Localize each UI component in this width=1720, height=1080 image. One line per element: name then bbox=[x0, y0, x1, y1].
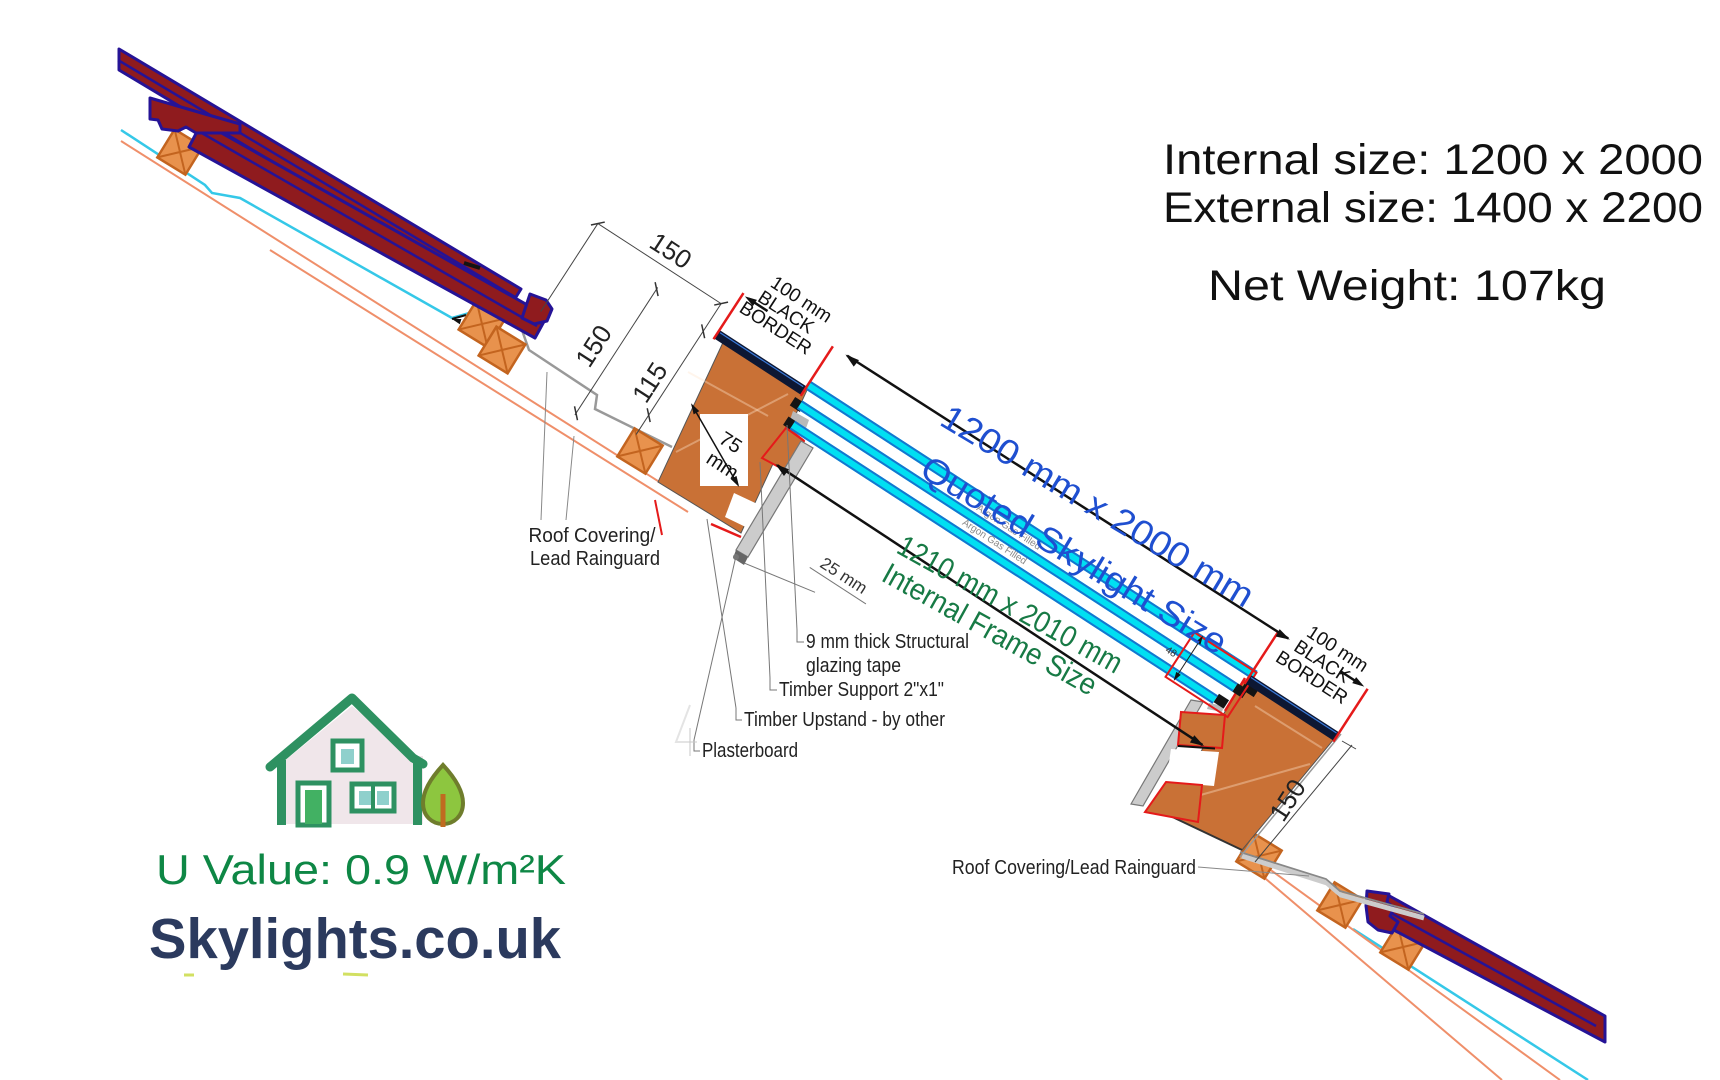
svg-text:Timber Support 2"x1": Timber Support 2"x1" bbox=[779, 679, 944, 701]
svg-text:U Value: 0.9 W/m²K: U Value: 0.9 W/m²K bbox=[156, 846, 566, 893]
svg-text:Plasterboard: Plasterboard bbox=[702, 740, 798, 762]
svg-text:Roof Covering/: Roof Covering/ bbox=[529, 525, 656, 547]
svg-text:Lead Rainguard: Lead Rainguard bbox=[530, 548, 660, 570]
svg-text:Timber Upstand - by other: Timber Upstand - by other bbox=[744, 709, 945, 731]
svg-text:Roof Covering/Lead Rainguard: Roof Covering/Lead Rainguard bbox=[952, 857, 1196, 879]
svg-text:Net Weight: 107kg: Net Weight: 107kg bbox=[1208, 262, 1606, 310]
svg-text:9 mm thick Structural: 9 mm thick Structural bbox=[806, 631, 969, 653]
svg-text:Skylights.co.uk: Skylights.co.uk bbox=[149, 907, 561, 971]
svg-text:glazing tape: glazing tape bbox=[806, 655, 901, 677]
svg-text:Internal size: 1200 x 2000: Internal size: 1200 x 2000 bbox=[1163, 136, 1703, 184]
svg-text:External size: 1400 x 2200: External size: 1400 x 2200 bbox=[1163, 184, 1703, 232]
